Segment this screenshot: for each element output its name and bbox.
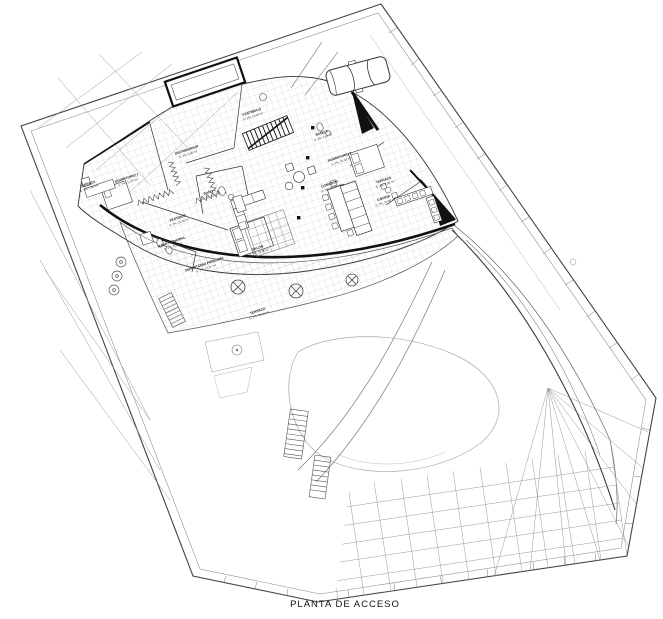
stair-garden-mid2 (309, 455, 331, 499)
stair-garden-mid1 (284, 409, 309, 459)
garden-grid (305, 447, 627, 599)
plan-drawing: VESTIBULO S: 2%, 14,38 m² DISTRIBUIDOR S… (0, 0, 663, 619)
floor-plan-canvas: VESTIBULO S: 2%, 14,38 m² DISTRIBUIDOR S… (0, 0, 663, 619)
plan-title: PLANTA DE ACCESO (290, 599, 400, 610)
car-icon (324, 53, 392, 100)
terrace-fan (452, 226, 648, 577)
stepping-circles (109, 257, 126, 295)
